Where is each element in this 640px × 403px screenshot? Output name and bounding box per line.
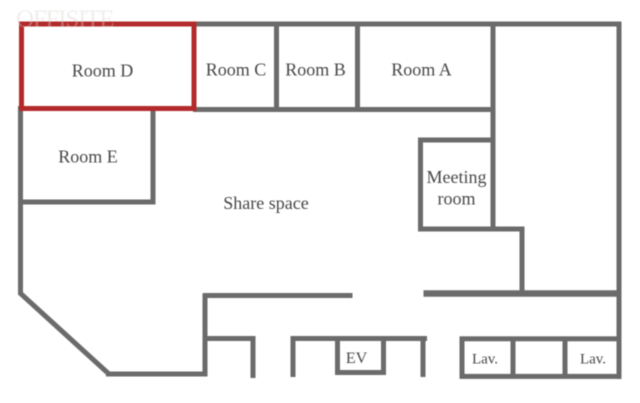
svg-text:Room A: Room A xyxy=(391,60,452,80)
svg-text:Room D: Room D xyxy=(72,61,134,81)
svg-text:Room C: Room C xyxy=(206,60,267,80)
svg-text:Lav.: Lav. xyxy=(472,352,498,368)
svg-text:Lav.: Lav. xyxy=(580,352,606,368)
svg-text:Room B: Room B xyxy=(285,60,346,80)
svg-text:OFFISITE: OFFISITE xyxy=(16,6,114,33)
svg-text:room: room xyxy=(438,189,476,209)
svg-text:Room E: Room E xyxy=(58,147,118,167)
svg-text:EV: EV xyxy=(346,350,368,367)
svg-text:Share space: Share space xyxy=(223,193,308,213)
svg-text:Meeting: Meeting xyxy=(427,167,487,187)
